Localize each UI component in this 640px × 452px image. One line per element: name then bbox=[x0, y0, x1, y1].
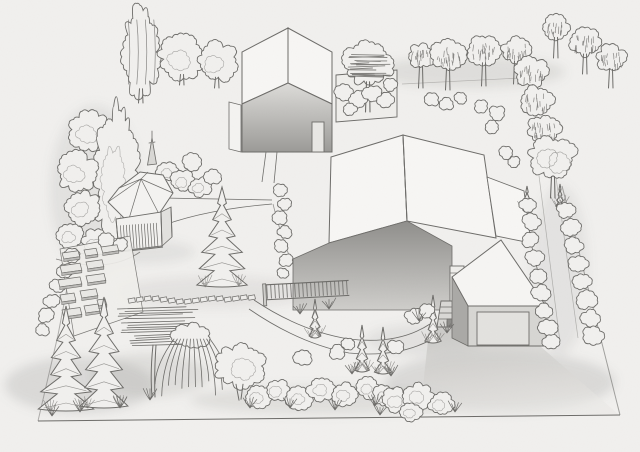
garden-plan-drawing: Hand-drawn pencil perspective sketch of … bbox=[0, 0, 640, 452]
sketch-page: Hand-drawn pencil perspective sketch of … bbox=[0, 0, 640, 452]
paper-texture bbox=[0, 0, 640, 452]
